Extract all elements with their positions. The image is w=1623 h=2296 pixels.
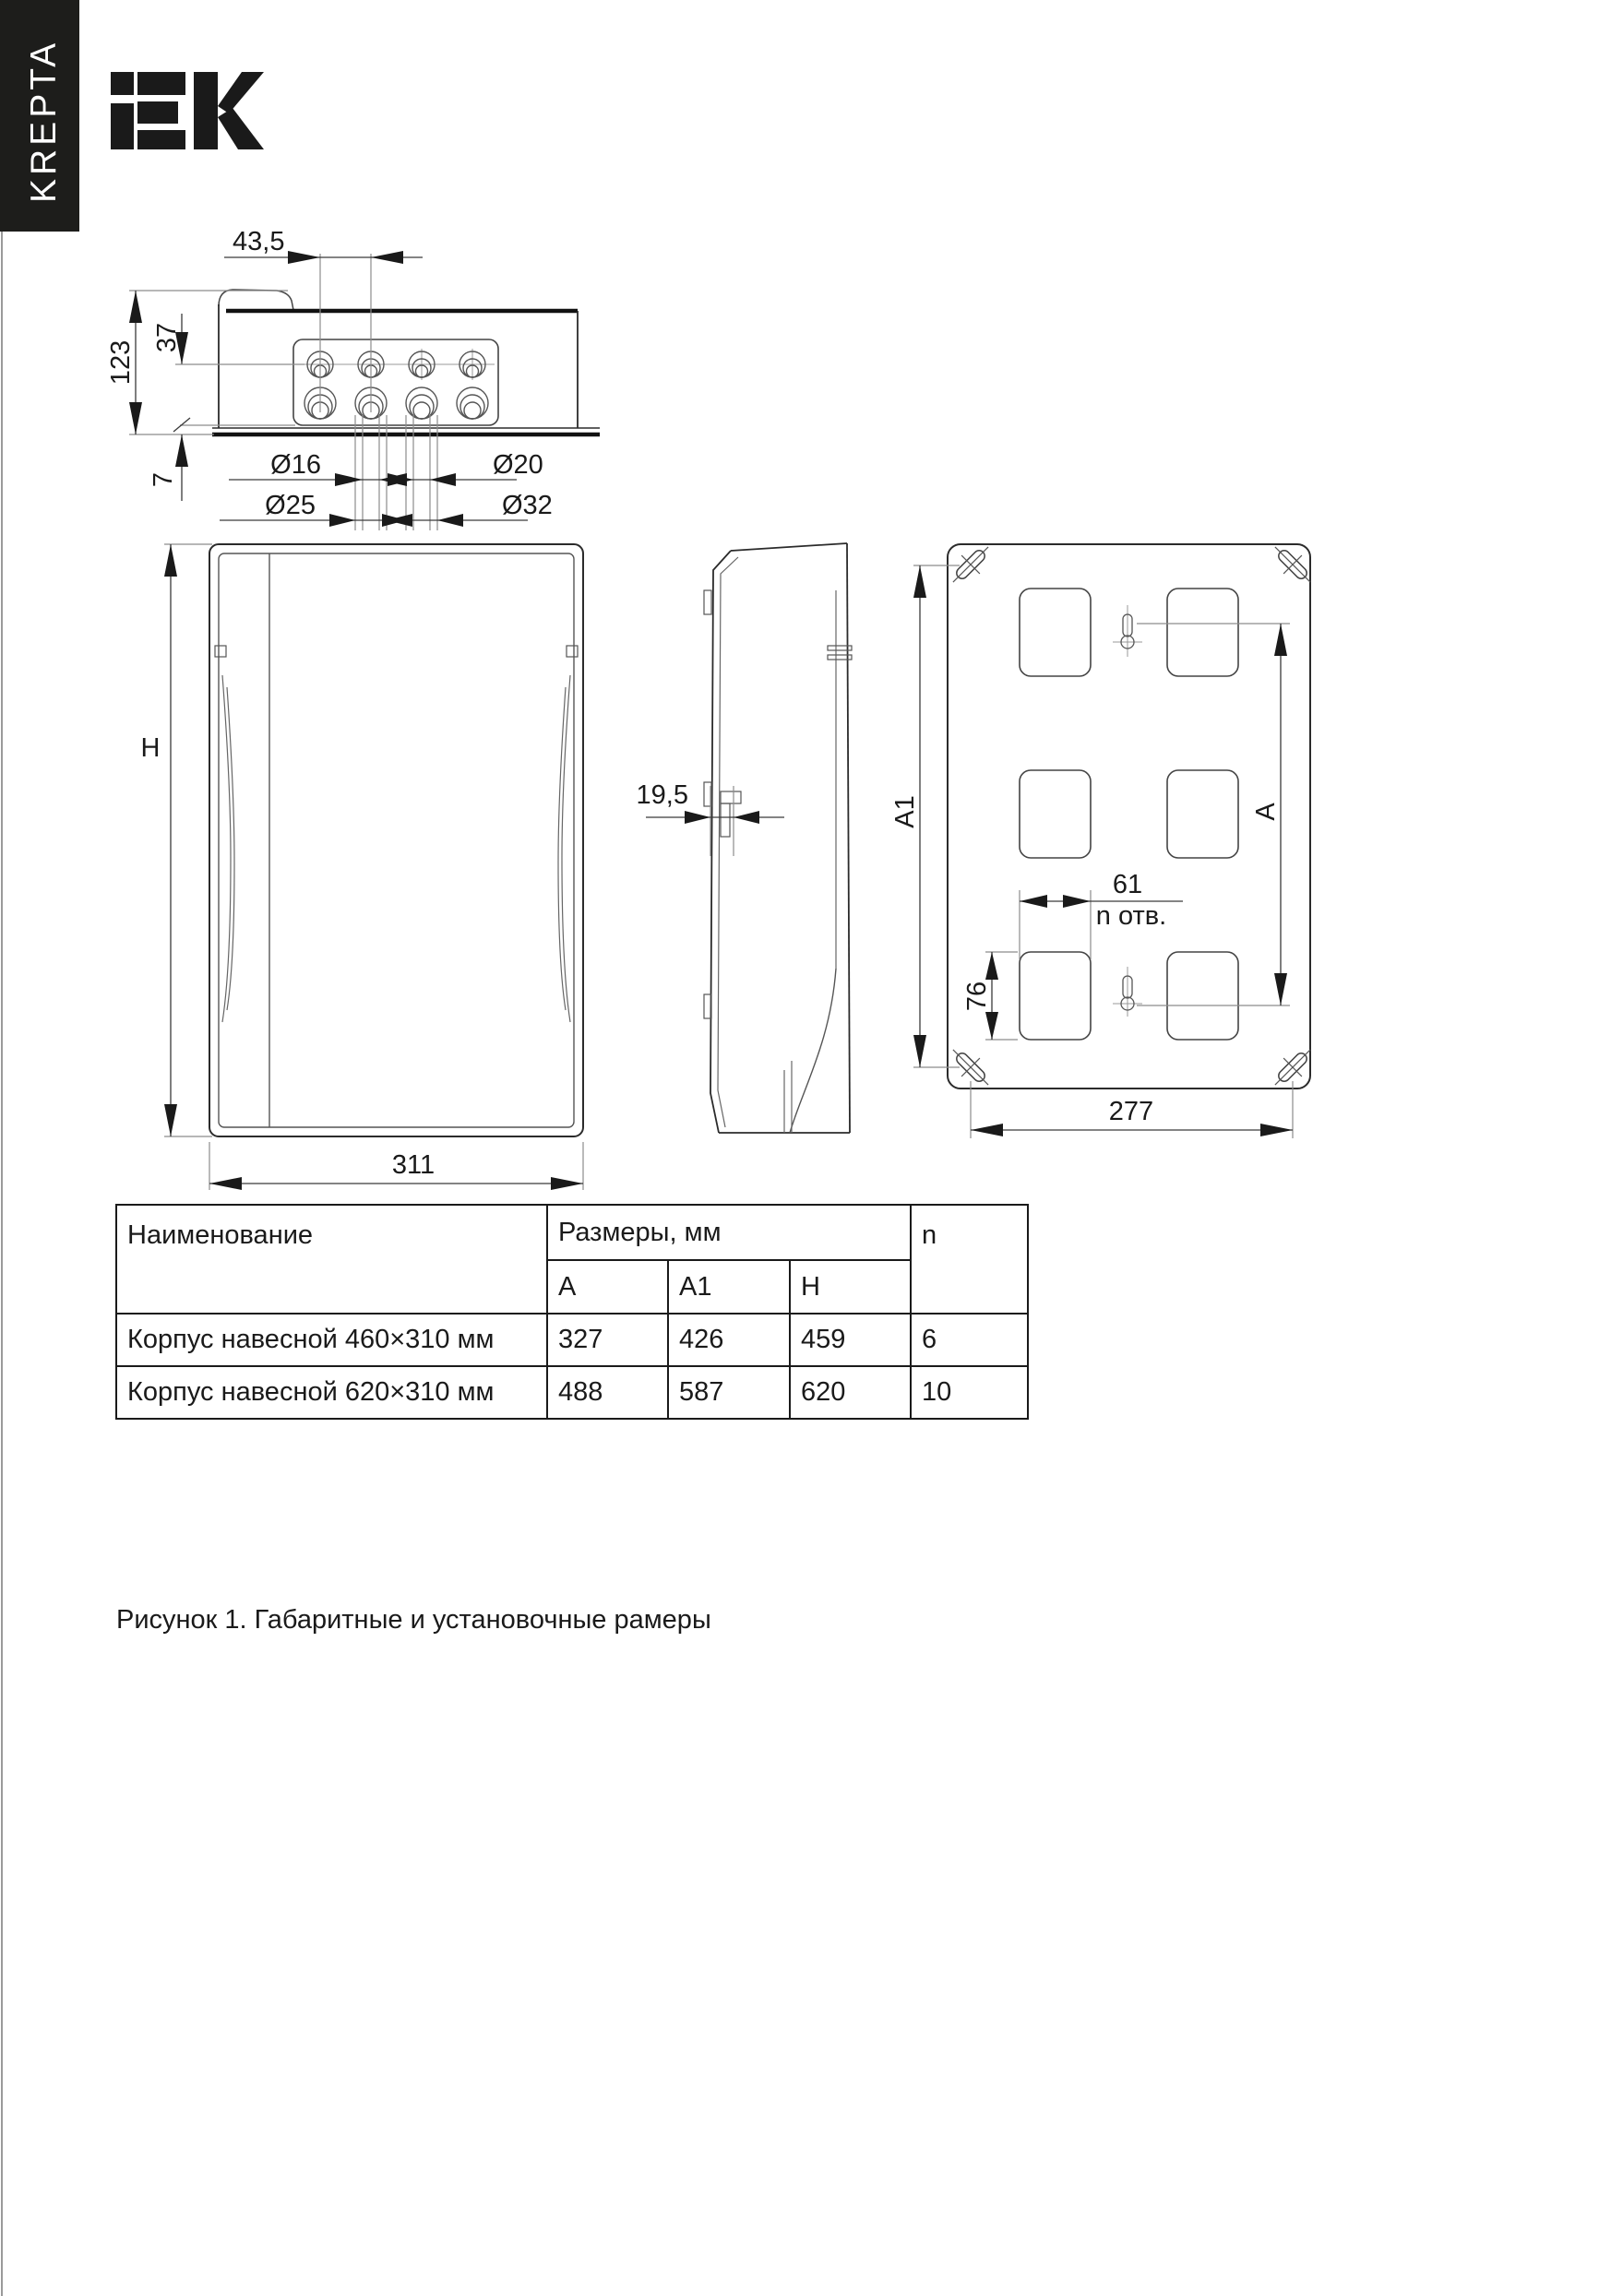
dim-door-depth: 19,5 [637, 780, 784, 856]
module-windows [1020, 589, 1238, 1040]
dim-hole-pitch: 61 n отв. [1020, 870, 1183, 959]
dim-top-offset-label: 37 [152, 323, 182, 352]
header-col-a: A [547, 1260, 668, 1314]
dim-hole-pitch-label: 61 [1113, 870, 1142, 899]
dim-bottom-offset-label: 7 [149, 472, 178, 487]
row-a: 327 [547, 1314, 668, 1366]
dim-a1-label: A1 [890, 795, 920, 827]
dim-hole-height: 76 [962, 952, 1018, 1040]
header-col-h: H [790, 1260, 911, 1314]
side-view: 19,5 [637, 543, 852, 1133]
figure-caption: Рисунок 1. Габаритные и установочные рам… [116, 1605, 711, 1636]
dim-dia32-label: Ø32 [502, 491, 553, 520]
row-n: 10 [911, 1366, 1028, 1419]
dim-depth-label: 123 [106, 340, 136, 385]
knockouts-bottom-row [304, 387, 488, 419]
dim-a: A [1137, 624, 1290, 1005]
dim-mount-width-label: 277 [1109, 1097, 1153, 1126]
row-a1: 426 [668, 1314, 790, 1366]
dim-hole-height-label: 76 [962, 981, 992, 1011]
row-h: 620 [790, 1366, 911, 1419]
dim-mount-width: 277 [971, 1081, 1293, 1138]
dim-top-offset: 37 [152, 314, 304, 364]
dim-door-depth-label: 19,5 [637, 780, 688, 810]
back-view: A1 A 61 n отв. [890, 538, 1319, 1138]
technical-drawing: 43,5 123 37 [0, 0, 1623, 1199]
dim-dia20-label: Ø20 [493, 450, 543, 480]
hinge-bump-1 [704, 590, 711, 614]
top-view: 43,5 123 37 [106, 227, 600, 530]
dim-width: 311 [209, 1142, 583, 1190]
header-sizes: Размеры, мм [547, 1205, 911, 1260]
dim-pitch: 43,5 [224, 227, 423, 412]
dim-a-label: A [1251, 803, 1281, 821]
corner-slot-top-right [1266, 538, 1319, 591]
keyhole-bottom [1113, 967, 1142, 1017]
row-a: 488 [547, 1366, 668, 1419]
table-row: Корпус навесной 620×310 мм 488 587 620 1… [116, 1366, 1028, 1419]
dim-a1: A1 [890, 565, 960, 1067]
dim-pitch-label: 43,5 [233, 227, 284, 256]
dimensions-table: Наименование Размеры, мм n A A1 H Корпус… [115, 1204, 1029, 1420]
header-col-a1: A1 [668, 1260, 790, 1314]
latch-notch-left [215, 646, 226, 657]
row-a1: 587 [668, 1366, 790, 1419]
dim-width-label: 311 [392, 1150, 435, 1180]
header-n: n [911, 1205, 1028, 1314]
row-n: 6 [911, 1314, 1028, 1366]
front-view: H 311 [141, 544, 583, 1190]
datasheet-page: KREPTA [0, 0, 1623, 2296]
row-name: Корпус навесной 620×310 мм [116, 1366, 547, 1419]
row-name: Корпус навесной 460×310 мм [116, 1314, 547, 1366]
corner-slot-top-left [944, 538, 997, 591]
holes-note-label: n отв. [1096, 901, 1166, 931]
dim-dia25-label: Ø25 [265, 491, 316, 520]
dim-dia16-label: Ø16 [270, 450, 321, 480]
dim-height: H [141, 544, 212, 1136]
row-h: 459 [790, 1314, 911, 1366]
table-row: Корпус навесной 460×310 мм 327 426 459 6 [116, 1314, 1028, 1366]
dim-height-label: H [141, 733, 161, 763]
door-latch-detail [721, 791, 741, 803]
latch-notch-right [567, 646, 578, 657]
keyhole-top [1113, 605, 1142, 657]
header-name: Наименование [116, 1205, 547, 1314]
